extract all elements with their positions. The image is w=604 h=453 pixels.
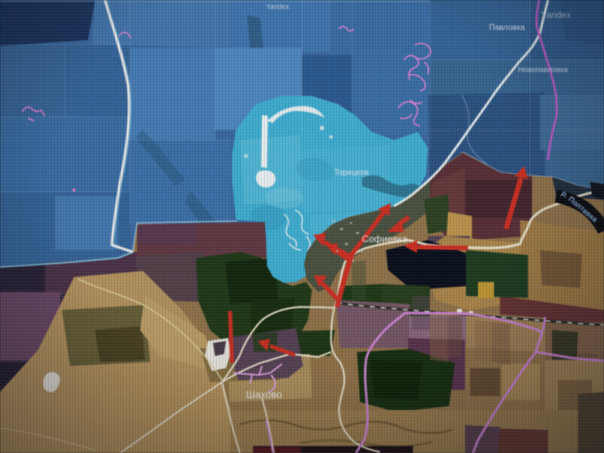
svg-text:Yandex: Yandex xyxy=(266,4,290,11)
svg-text:Yandex: Yandex xyxy=(541,10,571,20)
svg-text:Новопавловка: Новопавловка xyxy=(518,65,569,74)
svg-text:Шахово: Шахово xyxy=(246,390,282,401)
svg-text:Торецкое: Торецкое xyxy=(334,168,369,177)
svg-text:Yandex: Yandex xyxy=(573,351,598,360)
svg-text:Софиевка: Софиевка xyxy=(362,234,408,245)
svg-text:Павловка: Павловка xyxy=(489,23,525,32)
